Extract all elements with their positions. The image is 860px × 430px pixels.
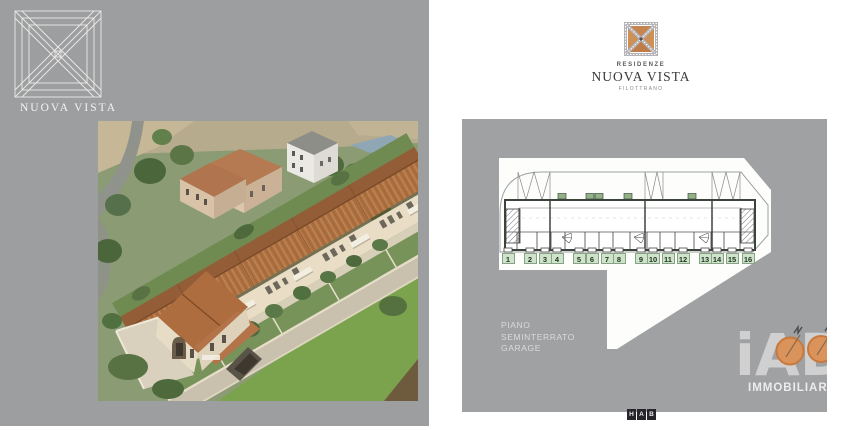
unit-badge-11: 11 bbox=[662, 253, 675, 264]
aerial-render-graphic bbox=[98, 121, 418, 401]
right-logo-subtitle: FILOTTRANO bbox=[561, 86, 721, 92]
right-logo-residenze: RESIDENZE bbox=[561, 62, 721, 68]
unit-badge-10: 10 bbox=[647, 253, 660, 264]
footer-hab-logo: H A B bbox=[627, 409, 656, 420]
unit-badge-5: 5 bbox=[573, 253, 586, 264]
footer-hab-letter-3: B bbox=[647, 409, 656, 420]
page: { "brand": { "left_logo": { "title": "NU… bbox=[0, 0, 860, 430]
right-logo-title: NUOVA VISTA bbox=[561, 69, 721, 85]
unit-badges: 12345678910111213141516 bbox=[462, 119, 827, 412]
unit-badge-14: 14 bbox=[711, 253, 724, 264]
unit-badge-2: 2 bbox=[524, 253, 537, 264]
unit-badge-6: 6 bbox=[586, 253, 599, 264]
unit-badge-8: 8 bbox=[613, 253, 626, 264]
floorplan-panel: iAD IMMOBILIARE PIANO SEMINTERRATO GARAG… bbox=[462, 119, 827, 412]
nuova-vista-outline-logo-icon bbox=[12, 8, 104, 102]
unit-badge-12: 12 bbox=[677, 253, 690, 264]
footer-hab-letter-1: H bbox=[627, 409, 636, 420]
unit-badge-16: 16 bbox=[742, 253, 755, 264]
footer-hab-letter-2: A bbox=[637, 409, 646, 420]
unit-badge-1: 1 bbox=[502, 253, 515, 264]
left-gray-panel: NUOVA VISTA bbox=[0, 0, 429, 426]
nuova-vista-color-logo-icon bbox=[624, 22, 658, 56]
unit-badge-15: 15 bbox=[726, 253, 739, 264]
left-logo-title: NUOVA VISTA bbox=[20, 102, 120, 114]
aerial-render-image bbox=[98, 121, 418, 401]
unit-badge-4: 4 bbox=[551, 253, 564, 264]
right-logo-block: RESIDENZE NUOVA VISTA FILOTTRANO bbox=[561, 22, 721, 92]
